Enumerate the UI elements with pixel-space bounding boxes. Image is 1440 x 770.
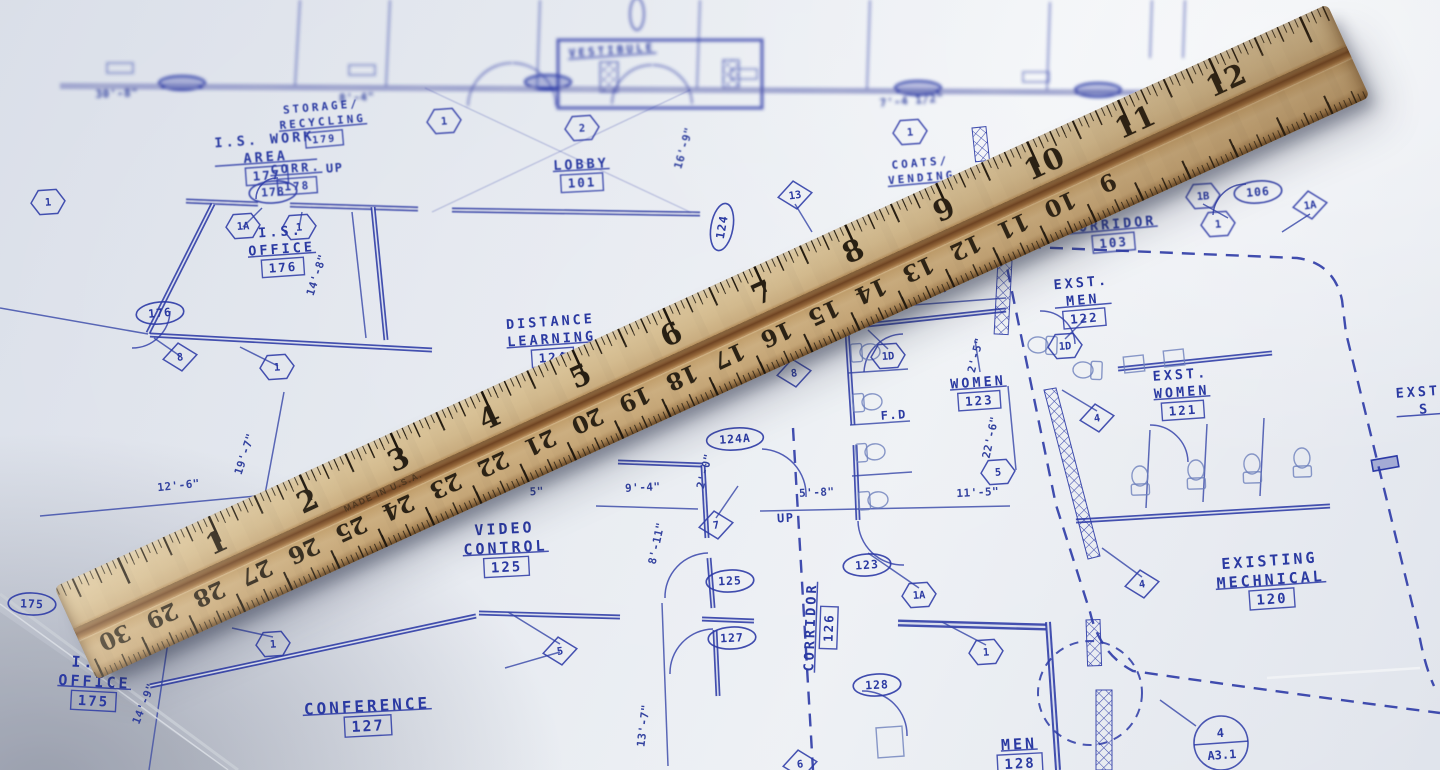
keynote-hex-1A: 1A	[901, 582, 937, 608]
wall-symbol	[1371, 456, 1399, 471]
plan-line	[386, 0, 390, 87]
room-label-121: EXST.WOMEN121	[1152, 365, 1212, 421]
keynote-diamond-1A: 1A	[1291, 189, 1329, 221]
toilet-fixture	[850, 342, 880, 362]
room-label-exst-: EXST.S	[1395, 382, 1440, 419]
keynote-number: 1D	[881, 350, 894, 363]
door-tag-number: 125	[718, 573, 742, 588]
room-number: 103	[1099, 234, 1129, 251]
plan-line	[505, 652, 560, 668]
keynote-diamond-13: 13	[776, 179, 814, 211]
keynote-number: 4	[1138, 578, 1146, 591]
dimension-text: 14'-8"	[304, 253, 330, 298]
detail-callout: 4A3.1	[1192, 714, 1250, 770]
dimension-text: 22'-6"	[980, 415, 1002, 460]
keynote-diamond-7: 7	[697, 509, 735, 541]
hatched-wall	[972, 127, 989, 162]
plan-line	[867, 0, 870, 89]
toilet-fixture	[852, 392, 882, 412]
room-number: 122	[1069, 309, 1099, 326]
room-number: 176	[268, 259, 298, 276]
door-tag-number: 175	[20, 596, 44, 611]
toilet-fixture	[855, 442, 885, 462]
keynote-number: 1D	[1058, 340, 1071, 353]
keynote-hex-1: 1	[30, 189, 66, 215]
toilet-fixture	[1187, 460, 1206, 490]
plan-line	[662, 603, 668, 766]
room-label-123: WOMEN123	[949, 373, 1008, 412]
toilet-fixture	[858, 490, 888, 510]
plan-line	[1203, 424, 1207, 502]
dimension-text: 7'-4 1/2"	[879, 91, 944, 110]
callout-detail-number: 4	[1216, 726, 1224, 740]
keynote-number: 1	[269, 638, 276, 650]
door-tag-124: 124	[707, 202, 737, 253]
plan-line	[1102, 548, 1142, 577]
keynote-number: 1	[440, 115, 447, 127]
plan-line	[1282, 214, 1310, 232]
callout-sheet-number: A3.1	[1207, 747, 1237, 763]
keynote-diamond-5: 5	[541, 635, 579, 667]
room-number: 175	[77, 693, 109, 711]
keynote-hex-1: 1	[259, 354, 295, 380]
plan-line	[852, 472, 912, 476]
plan-sharp-area: I.S.OFFICE176DISTANCELEARNING124VIDEOCON…	[0, 127, 1440, 770]
keynote-number: 2	[578, 122, 585, 134]
room-label-101: LOBBY101	[552, 155, 611, 193]
plan-line	[352, 212, 366, 338]
door-swing-arc	[1213, 184, 1246, 215]
hatched-wall	[1086, 620, 1102, 666]
keynote-diamond-4: 4	[1078, 402, 1116, 434]
dimension-text: 2'-5"	[965, 336, 986, 374]
room-number: 123	[965, 392, 995, 409]
plan-line	[697, 0, 700, 88]
room-label-125: VIDEOCONTROL125	[461, 518, 550, 579]
room-name: EXST.	[1152, 365, 1209, 385]
keynote-hex-1A: 1A	[225, 213, 261, 239]
keynote-hex-5: 5	[980, 459, 1016, 485]
room-number: 125	[491, 559, 523, 577]
keynote-number: 1A	[912, 589, 926, 602]
room-name: EXST.	[1053, 273, 1110, 294]
room-label-127: CONFERENCE127	[302, 693, 433, 739]
keynote-number: 4	[1093, 412, 1101, 425]
room-number: 128	[1004, 755, 1036, 770]
door-tag-number: 127	[720, 630, 744, 645]
dimension-text: 8'-11"	[646, 521, 668, 566]
room-number: 127	[351, 716, 385, 736]
dimension-text: 16'-9"	[671, 126, 695, 171]
room-label-120: EXISTINGMECHNICAL120	[1214, 548, 1328, 612]
photo-blueprint-with-ruler: VESTIBULE30'-8"8'-4"7'-4 1/2"I.S. WORKAR…	[0, 0, 1440, 770]
door-swing-arc	[1150, 425, 1188, 462]
wall-tag-pill	[630, 0, 644, 30]
plan-line	[537, 0, 540, 87]
keynote-number: 5	[556, 645, 564, 658]
wall-tag-pill	[159, 76, 205, 90]
door-tag-124A: 124A	[706, 426, 764, 452]
toilet-fixture	[1073, 361, 1103, 380]
door-tag-number: 124	[713, 214, 731, 240]
keynote-number: 1	[982, 646, 989, 658]
dimension-text: 11'-5"	[956, 485, 999, 500]
sink-fixture	[876, 726, 904, 758]
hatched-wall	[1044, 388, 1100, 559]
plan-note-up: UP	[326, 160, 344, 175]
hatched-wall	[723, 60, 739, 88]
plan-line	[596, 506, 698, 509]
plan-line	[848, 369, 908, 373]
room-label-128: MEN128	[996, 734, 1043, 770]
plan-line	[850, 421, 910, 425]
plan-far-blurred-area: VESTIBULE30'-8"8'-4"7'-4 1/2"	[60, 0, 1205, 110]
keynote-diamond-8: 8	[161, 341, 199, 373]
plan-line	[1183, 0, 1185, 58]
room-number: 120	[1256, 591, 1288, 609]
keynote-number: 1B	[1196, 190, 1209, 203]
wall-tag-pill	[1075, 83, 1121, 97]
plan-line	[240, 347, 278, 366]
room-label-126: CORRIDOR126	[801, 581, 839, 673]
toilet-fixture	[1243, 454, 1262, 484]
plan-note-up: UP	[777, 511, 795, 526]
keynote-diamond-6: 6	[781, 748, 819, 770]
plan-line	[1260, 418, 1264, 496]
plan-line	[1150, 0, 1152, 58]
keynote-number: 13	[788, 189, 802, 203]
keynote-number: 5	[994, 466, 1001, 478]
dimension-text: 12'-6"	[157, 477, 201, 494]
room-name: VESTIBULE	[568, 41, 655, 60]
room-number: 101	[567, 174, 596, 190]
keynote-number: 1	[906, 126, 913, 138]
plan-line	[0, 308, 148, 334]
dimension-text: 9'-4"	[625, 480, 661, 495]
room-name: VIDEO	[474, 518, 535, 539]
room-number: 179	[312, 133, 337, 146]
plan-line	[295, 0, 300, 86]
door-swing-arc	[670, 629, 713, 674]
hatched-wall	[1096, 690, 1112, 770]
room-number: 126	[821, 613, 837, 642]
keynote-number: 1	[273, 361, 280, 373]
door-swing-arc	[665, 553, 708, 598]
keynote-hex-1: 1	[1200, 211, 1236, 237]
plan-line	[1008, 386, 1016, 470]
door-swing-arc	[468, 63, 512, 106]
keynote-diamond-4: 4	[1123, 568, 1161, 600]
keynote-hex-1: 1	[968, 639, 1004, 665]
keynote-number: 1A	[1303, 199, 1318, 213]
door-tag-123: 123	[842, 552, 891, 577]
room-number: 121	[1168, 402, 1198, 419]
room-name: I.S. WORK	[214, 129, 315, 152]
keynote-number: 1	[295, 221, 302, 233]
grid-tag	[349, 65, 375, 75]
door-swing-arc	[862, 691, 907, 736]
plan-line	[1267, 668, 1420, 678]
room-label-122: EXST.MEN122	[1052, 273, 1113, 330]
dimension-text: 30'-8"	[95, 86, 138, 100]
toilet-fixture	[1293, 448, 1312, 478]
keynote-number: 1	[44, 196, 51, 208]
keynote-number: 8	[176, 351, 184, 364]
keynote-number: 7	[712, 519, 720, 532]
grid-tag	[1023, 72, 1049, 82]
plan-note-fd: F.D	[880, 407, 907, 423]
dimension-text: 2'-0"	[694, 452, 715, 490]
room-name: EXST.	[1395, 382, 1440, 402]
dimension-text: 19'-7"	[232, 432, 258, 477]
room-label-vestibule: VESTIBULE	[567, 41, 656, 60]
door-tag-number: 106	[1246, 184, 1271, 200]
door-tag-106: 106	[1233, 179, 1282, 205]
door-tag-number: 176	[148, 305, 173, 321]
grid-tag	[107, 63, 133, 73]
plan-line	[1160, 700, 1196, 726]
keynote-hex-2: 2	[564, 115, 600, 141]
keynote-number: 1A	[236, 220, 250, 233]
keynote-number: 6	[796, 758, 804, 770]
door-tag-number: 124A	[719, 431, 752, 447]
keynote-number: 1	[1214, 218, 1221, 230]
keynote-hex-1: 1	[892, 119, 928, 145]
keynote-number: 8	[790, 367, 798, 380]
keynote-hex-1: 1	[426, 108, 462, 134]
hatched-wall	[994, 260, 1012, 335]
dimension-text: 13'-7"	[634, 704, 652, 748]
door-tag-number: 123	[855, 557, 880, 573]
door-tag-number: 128	[865, 677, 889, 692]
door-tag-number: 178	[261, 184, 286, 200]
plan-line	[716, 486, 738, 518]
plan-line	[1146, 430, 1150, 508]
dimension-text: 5"	[529, 485, 544, 499]
dimension-text: 5'-8"	[799, 485, 835, 500]
